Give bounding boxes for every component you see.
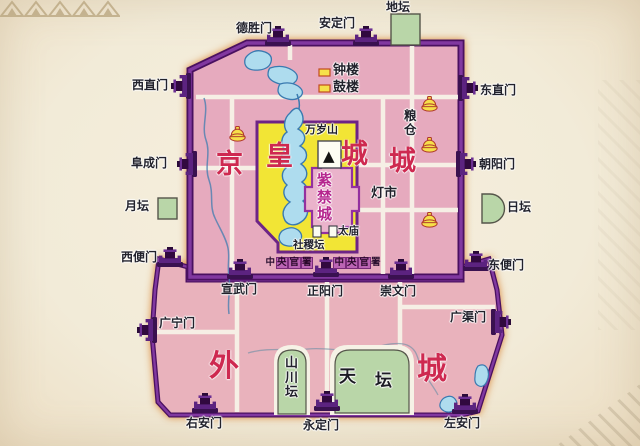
city-gate-icon-guangningmen xyxy=(137,317,157,343)
zijincheng-char-3: 城 xyxy=(317,206,332,223)
ritan-dshape xyxy=(482,194,504,223)
yuetan-square xyxy=(158,198,177,219)
liangcang-char-2: 仓 xyxy=(404,123,417,137)
landmark-label-wansuishan: 万岁山 xyxy=(305,124,338,135)
landmark-label-central-offices-east: 中央官署 xyxy=(333,257,381,269)
gate-label-guangqumen: 广渠门 xyxy=(450,311,486,323)
region-label-huangcheng-huang: 皇 xyxy=(266,143,293,170)
gate-label-dongbianmen: 东便门 xyxy=(488,259,524,271)
zijincheng-char-1: 紫 xyxy=(317,172,332,189)
gate-label-chongwenmen: 崇文门 xyxy=(380,285,416,297)
scanned-map-page: 德胜门 安定门 西直门 东直门 阜成门 朝阳门 西便门 东便门 宣武门 正阳门 … xyxy=(0,0,640,446)
landmark-label-zhonglou: 钟楼 xyxy=(333,64,359,77)
page-border-ornament-right xyxy=(598,80,640,330)
altar-label-tiantan-tian: 天 xyxy=(339,369,356,386)
altar-label-tiantan-tan: 坛 xyxy=(375,373,392,390)
city-gate-icon-andingmen xyxy=(353,26,379,46)
beijing-historical-map xyxy=(0,0,640,446)
offices-east-char-3: 官 xyxy=(358,257,371,269)
shanchuantan-char-2: 川 xyxy=(285,372,298,387)
altar-label-shanchuantan: 山 川 坛 xyxy=(285,357,298,401)
shanchuantan-char-1: 山 xyxy=(285,357,298,372)
ditan-square xyxy=(391,14,420,45)
gate-label-deshengmen: 德胜门 xyxy=(236,22,272,34)
southeast-pond-1 xyxy=(475,365,489,387)
offices-west-char-4: 署 xyxy=(301,257,314,269)
city-gate-icon-chaoyangmen xyxy=(456,151,476,177)
city-gate-icon-xibianmen xyxy=(157,247,183,267)
gate-label-xuanwumen: 宣武门 xyxy=(221,283,257,295)
altar-label-ditan: 地坛 xyxy=(386,1,410,13)
region-label-jingcheng-cheng: 城 xyxy=(389,148,416,175)
city-gate-icon-dongbianmen xyxy=(463,251,489,271)
region-label-huangcheng-cheng: 城 xyxy=(341,141,368,168)
zijincheng-char-2: 禁 xyxy=(317,189,332,206)
altar-label-shejitan: 社稷坛 xyxy=(293,240,325,251)
region-label-jingcheng-jing: 京 xyxy=(216,151,243,178)
gate-label-zhengyangmen: 正阳门 xyxy=(307,285,343,297)
altar-building-icon-shejitan xyxy=(313,226,321,237)
liangcang-char-1: 粮 xyxy=(404,109,417,123)
offices-west-char-3: 官 xyxy=(288,257,301,269)
region-label-waicheng-cheng: 城 xyxy=(417,355,447,385)
page-border-ornament-bottom-right xyxy=(556,384,640,446)
offices-east-char-1: 中 xyxy=(333,257,346,269)
landmark-label-dengshi: 灯市 xyxy=(371,187,397,200)
tower-marker-icon-zhonglou xyxy=(319,69,330,76)
gate-label-xibianmen: 西便门 xyxy=(121,251,157,263)
gate-label-fuchengmen: 阜成门 xyxy=(131,157,167,169)
shanchuantan-char-3: 坛 xyxy=(285,386,298,401)
altar-label-taimiao: 太庙 xyxy=(338,226,359,237)
altar-label-ritan: 日坛 xyxy=(507,201,531,213)
tower-marker-icon-gulou xyxy=(319,85,330,92)
offices-east-char-4: 署 xyxy=(371,258,382,268)
gate-label-chaoyangmen: 朝阳门 xyxy=(479,158,515,170)
landmark-label-central-offices-west: 中央官署 xyxy=(265,257,313,269)
gate-label-xizhimen: 西直门 xyxy=(132,79,168,91)
gate-label-yongdingmen: 永定门 xyxy=(303,419,339,431)
gate-label-zuoanmen: 左安门 xyxy=(444,417,480,429)
altar-building-icon-taimiao xyxy=(329,226,337,237)
offices-west-char-2: 央 xyxy=(276,257,289,269)
city-gate-icon-guangqumen xyxy=(491,309,511,335)
gate-label-dongzhimen: 东直门 xyxy=(480,84,516,96)
city-gate-icon-fuchengmen xyxy=(177,151,197,177)
landmark-label-liangcang: 粮 仓 xyxy=(404,109,417,137)
offices-west-char-1: 中 xyxy=(265,258,276,268)
mountain-triangle-icon: ▲ xyxy=(323,147,335,165)
altar-label-yuetan: 月坛 xyxy=(125,200,149,212)
region-label-waicheng-wai: 外 xyxy=(209,352,239,382)
gate-label-youanmen: 右安门 xyxy=(186,417,222,429)
landmark-label-gulou: 鼓楼 xyxy=(333,81,359,94)
city-gate-icon-xizhimen xyxy=(171,73,191,99)
region-label-zijincheng: 紫 禁 城 xyxy=(317,172,332,222)
gate-label-andingmen: 安定门 xyxy=(319,17,355,29)
gate-label-guangningmen: 广宁门 xyxy=(159,317,195,329)
north-lake-1 xyxy=(245,51,272,70)
city-gate-icon-dongzhimen xyxy=(458,75,478,101)
offices-east-char-2: 央 xyxy=(346,257,359,269)
page-border-ornament-top-left xyxy=(0,0,120,17)
